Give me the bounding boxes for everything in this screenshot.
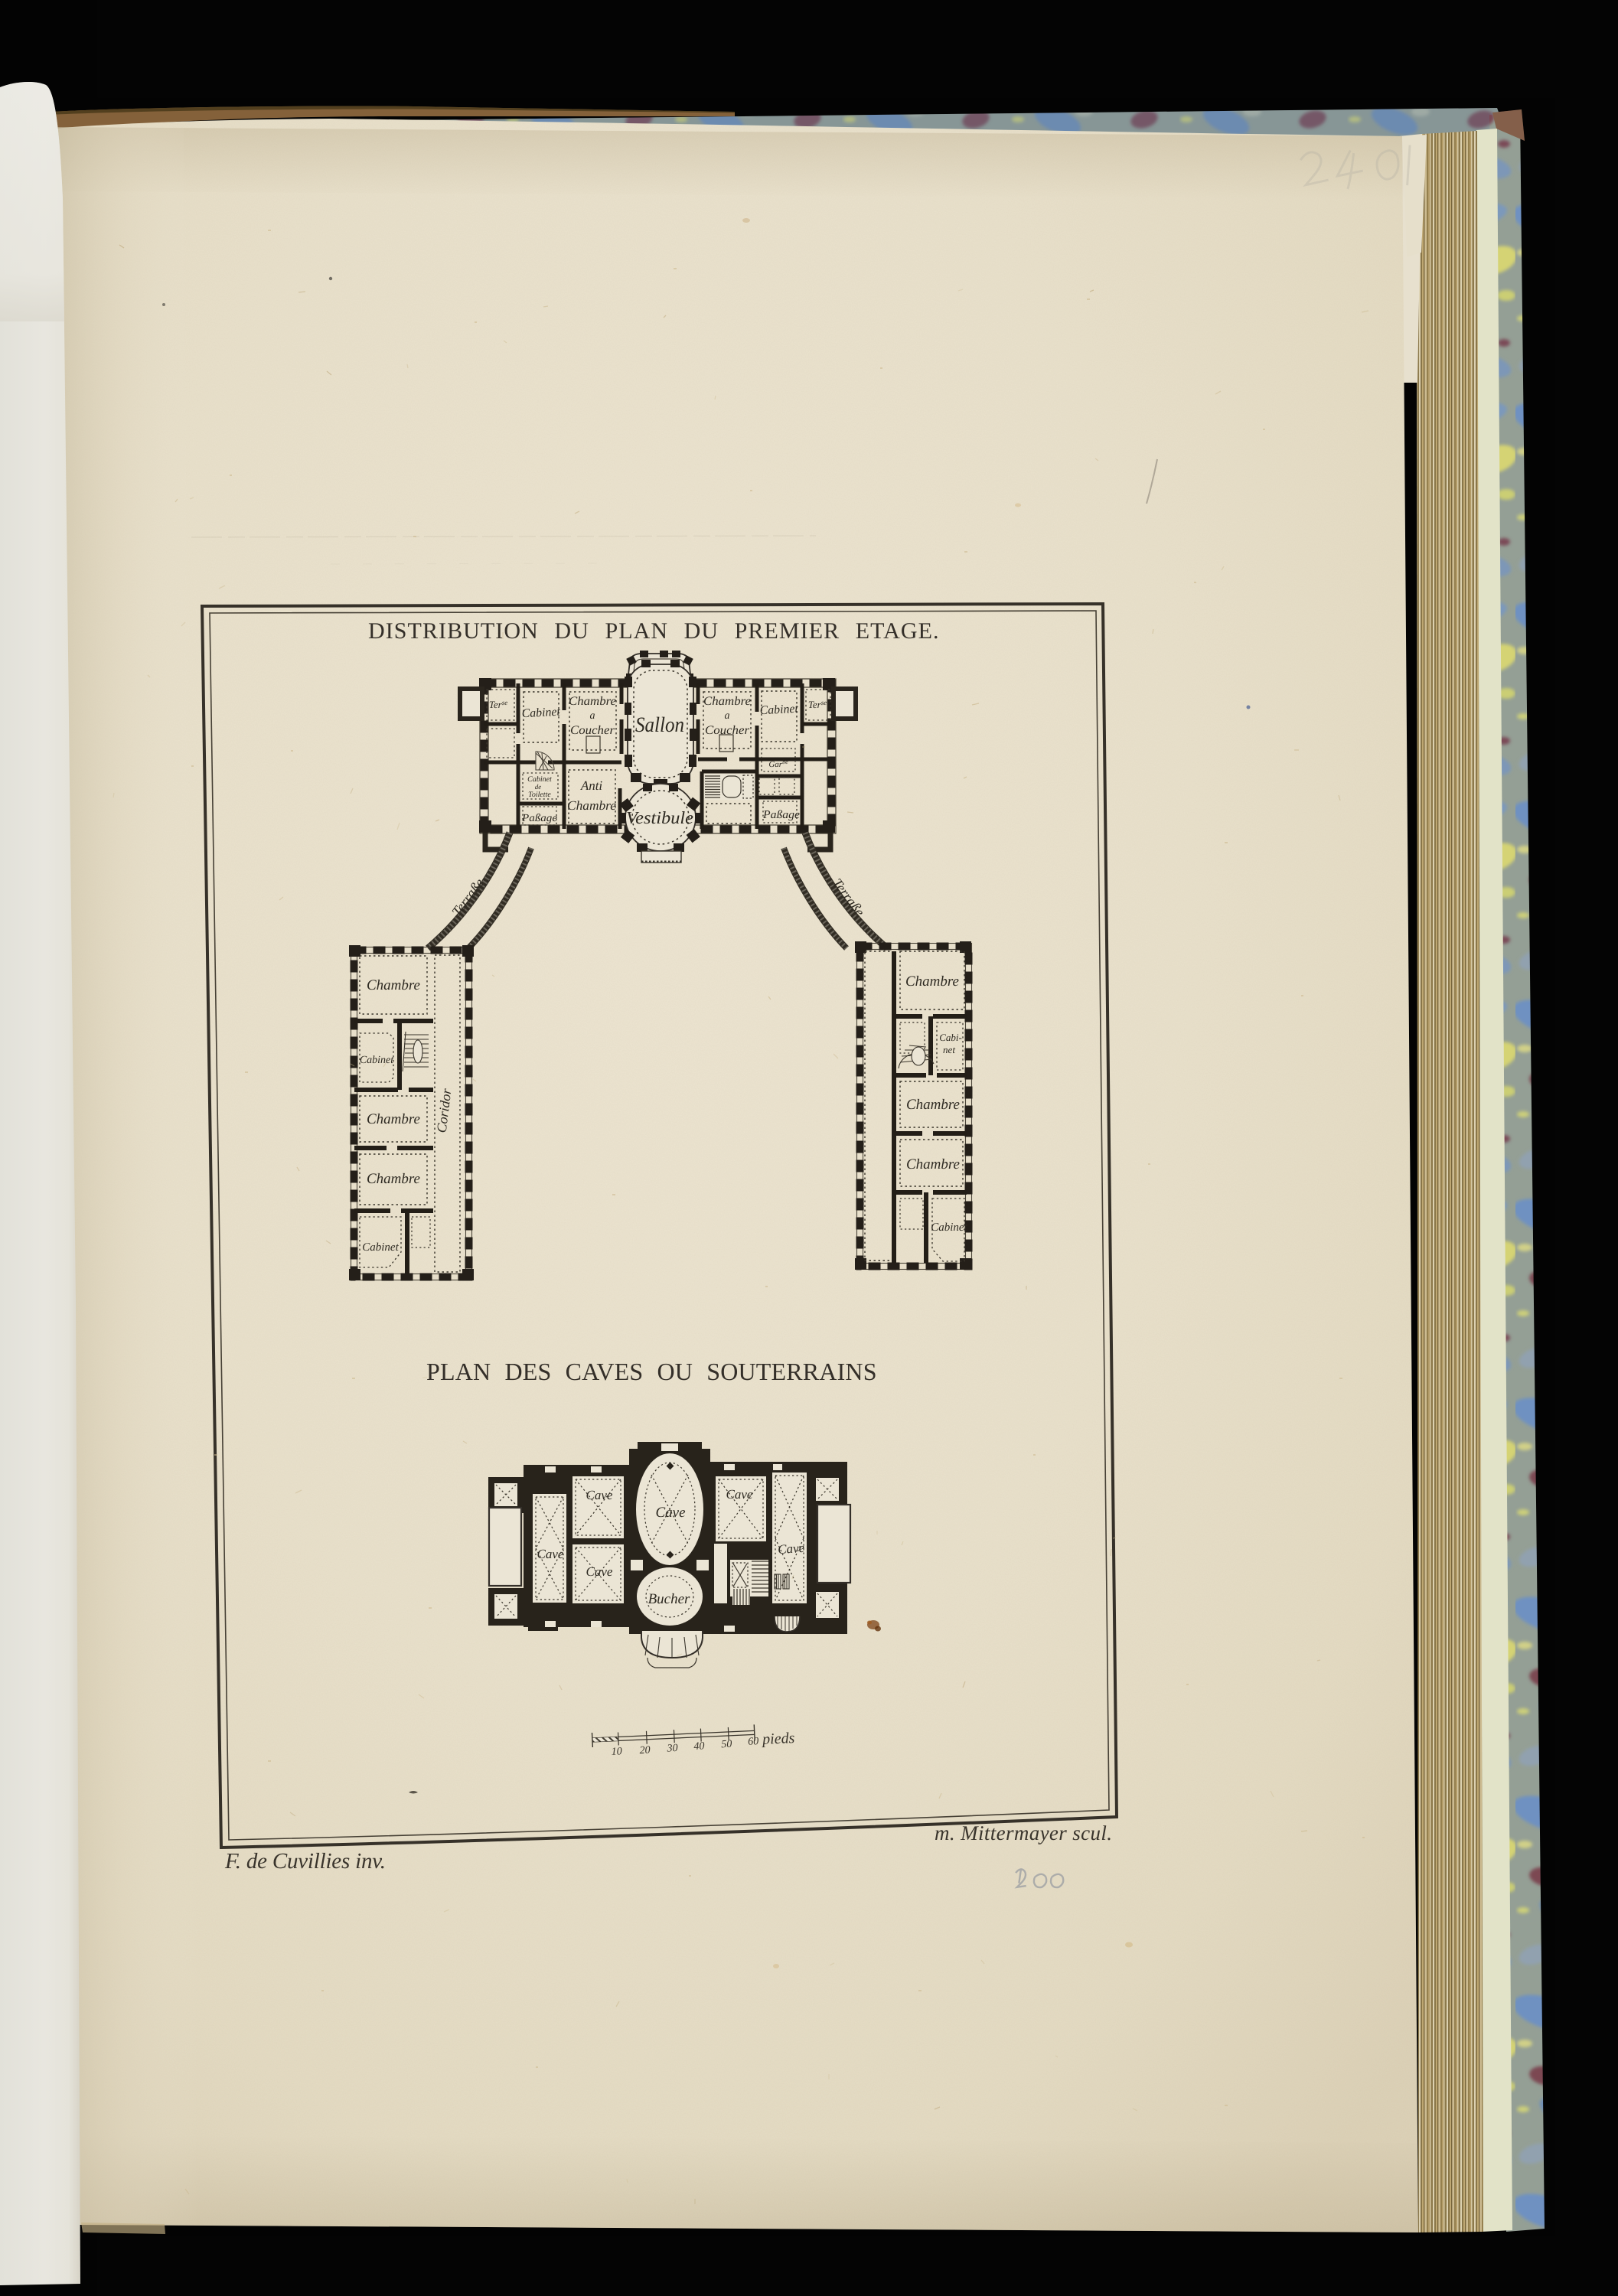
- svg-text:20: 20: [639, 1745, 651, 1757]
- svg-text:30: 30: [666, 1743, 678, 1755]
- svg-text:Cave: Cave: [586, 1564, 613, 1579]
- svg-text:DISTRIBUTION DU PLAN DU PREMIE: DISTRIBUTION DU PLAN DU PREMIER ETAGE.: [368, 618, 941, 644]
- svg-text:Chambre: Chambre: [367, 977, 420, 993]
- svg-text:de: de: [535, 783, 542, 791]
- svg-text:m. Mittermayer scul.: m. Mittermayer scul.: [935, 1821, 1112, 1844]
- svg-text:net: net: [943, 1044, 955, 1055]
- svg-text:Cabinet: Cabinet: [362, 1241, 399, 1254]
- svg-text:a: a: [590, 710, 595, 722]
- svg-text:40: 40: [693, 1740, 705, 1753]
- svg-text:Vestibule: Vestibule: [626, 808, 693, 827]
- svg-text:PLAN DES CAVES OU SOUTERRAINS: PLAN DES CAVES OU SOUTERRAINS: [426, 1358, 879, 1385]
- svg-text:10: 10: [611, 1746, 622, 1758]
- svg-text:Chambre: Chambre: [569, 695, 616, 708]
- svg-text:Chambre: Chambre: [367, 1171, 420, 1187]
- svg-text:Cave: Cave: [586, 1488, 613, 1502]
- svg-text:Cabinet: Cabinet: [521, 706, 560, 721]
- svg-text:50: 50: [721, 1739, 732, 1751]
- svg-text:Sallon: Sallon: [635, 713, 684, 737]
- svg-text:Cave: Cave: [778, 1541, 806, 1557]
- svg-text:Chambre: Chambre: [906, 1097, 960, 1113]
- svg-text:F. de Cuvillies inv.: F. de Cuvillies inv.: [224, 1849, 386, 1874]
- svg-text:Cave: Cave: [537, 1547, 564, 1561]
- svg-text:Cave: Cave: [726, 1487, 753, 1502]
- svg-text:Anti: Anti: [580, 778, 603, 793]
- svg-text:Chambre: Chambre: [906, 1156, 960, 1172]
- svg-text:Chambre: Chambre: [905, 974, 959, 990]
- svg-text:Paßage: Paßage: [762, 809, 800, 821]
- svg-text:Chambre: Chambre: [367, 1111, 420, 1127]
- svg-text:Cabi-: Cabi-: [939, 1032, 962, 1043]
- svg-text:Toilette: Toilette: [528, 791, 551, 799]
- svg-text:Cabinet: Cabinet: [931, 1221, 967, 1234]
- svg-text:Paßage: Paßage: [521, 813, 557, 824]
- svg-text:Chambre: Chambre: [703, 695, 751, 708]
- svg-text:Coucher: Coucher: [570, 724, 615, 737]
- svg-text:60: 60: [748, 1736, 759, 1748]
- svg-text:Coucher: Coucher: [705, 724, 750, 737]
- svg-text:Chambre: Chambre: [567, 798, 616, 813]
- svg-text:Cave: Cave: [655, 1505, 685, 1521]
- svg-text:Bucher: Bucher: [648, 1591, 690, 1607]
- svg-text:a: a: [725, 710, 730, 722]
- svg-text:Cabinet: Cabinet: [759, 703, 798, 718]
- svg-text:Cabinet: Cabinet: [360, 1055, 394, 1066]
- svg-text:pieds: pieds: [761, 1730, 795, 1748]
